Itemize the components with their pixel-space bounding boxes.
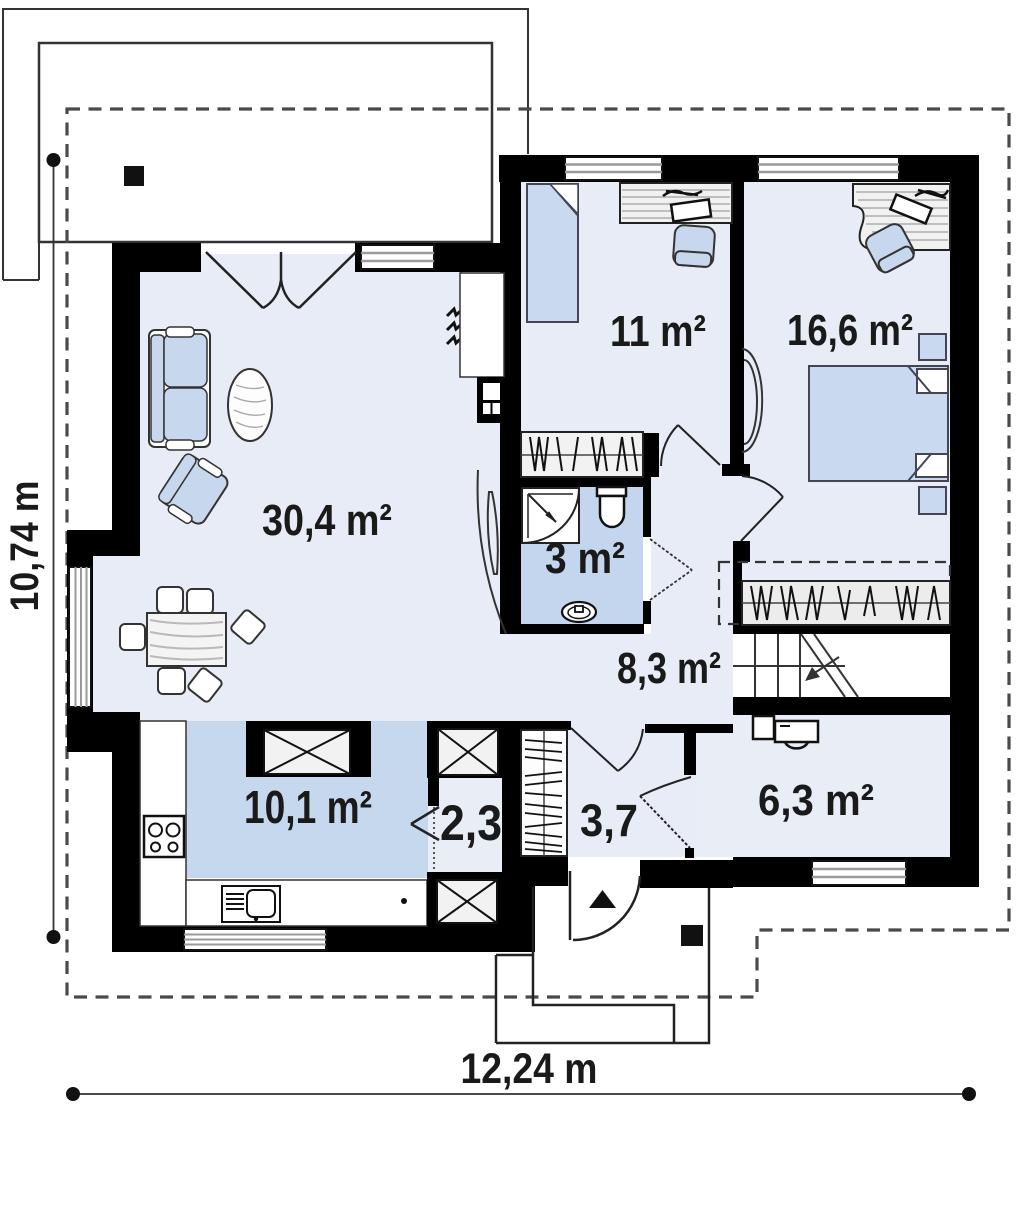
svg-text:30,4 m²: 30,4 m² bbox=[262, 496, 392, 545]
svg-text:10,74 m: 10,74 m bbox=[3, 481, 47, 612]
svg-text:6,3 m²: 6,3 m² bbox=[758, 776, 874, 825]
svg-text:12,24 m: 12,24 m bbox=[461, 1046, 598, 1093]
svg-text:2,3: 2,3 bbox=[440, 795, 502, 851]
svg-text:11 m²: 11 m² bbox=[610, 307, 706, 356]
svg-text:3,7: 3,7 bbox=[580, 795, 638, 846]
svg-text:10,1 m²: 10,1 m² bbox=[244, 781, 372, 833]
svg-text:16,6 m²: 16,6 m² bbox=[787, 306, 913, 355]
svg-text:8,3 m²: 8,3 m² bbox=[617, 644, 721, 693]
svg-text:3 m²: 3 m² bbox=[545, 534, 625, 583]
